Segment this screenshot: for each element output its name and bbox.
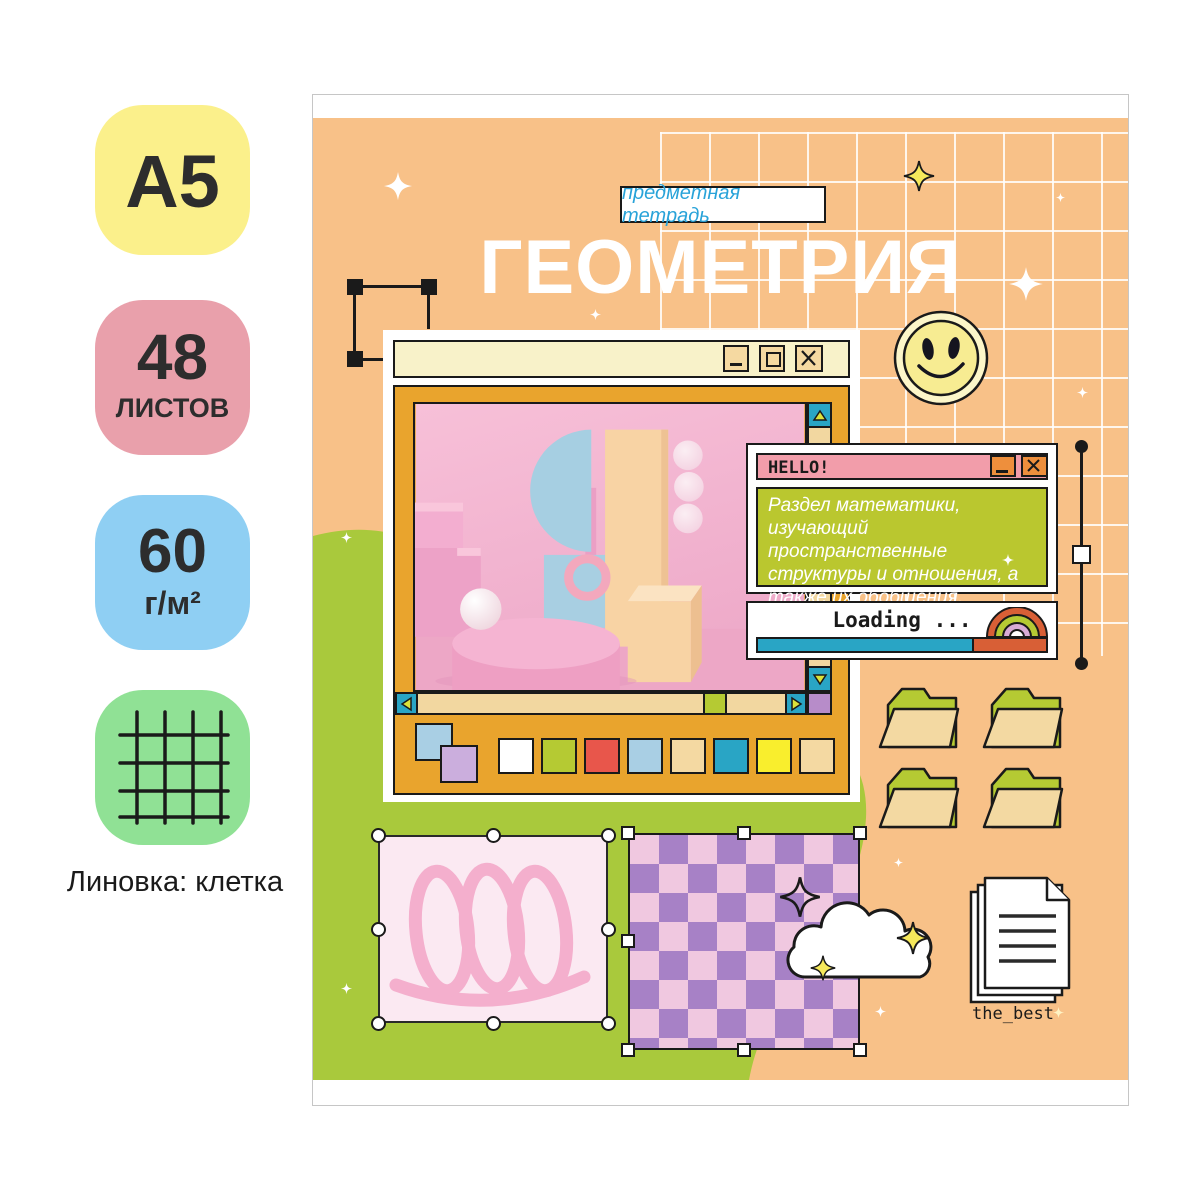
resize-handle[interactable] bbox=[486, 1016, 501, 1031]
cover-title: ГЕОМЕТРИЯ bbox=[313, 224, 1128, 311]
sparkle-icon bbox=[1055, 192, 1066, 203]
bracket-handle bbox=[347, 351, 363, 367]
folder-icon[interactable] bbox=[878, 765, 966, 831]
path-midpoint-handle[interactable] bbox=[1072, 545, 1091, 564]
scroll-left-button[interactable] bbox=[395, 692, 418, 715]
resize-handle[interactable] bbox=[621, 1043, 635, 1057]
resize-handle[interactable] bbox=[371, 1016, 386, 1031]
color-swatch[interactable] bbox=[799, 738, 835, 774]
notebook-cover: предметная тетрадь ГЕОМЕТРИЯ bbox=[313, 95, 1128, 1105]
sparkle-icon bbox=[1008, 266, 1044, 302]
folder-icon[interactable] bbox=[982, 685, 1070, 751]
hello-minimize-button[interactable] bbox=[990, 455, 1016, 477]
primary-color-chip[interactable] bbox=[440, 745, 478, 783]
ruling-badge bbox=[95, 690, 250, 845]
cover-print-area: предметная тетрадь ГЕОМЕТРИЯ bbox=[313, 118, 1128, 1080]
scrollbar-thumb[interactable] bbox=[703, 692, 727, 715]
close-button[interactable] bbox=[795, 345, 823, 372]
sparkle-icon bbox=[383, 171, 413, 201]
resize-handle[interactable] bbox=[486, 828, 501, 843]
sparkle-icon bbox=[893, 857, 904, 868]
color-swatch[interactable] bbox=[584, 738, 620, 774]
scrollbar-corner bbox=[807, 692, 832, 715]
color-swatch[interactable] bbox=[670, 738, 706, 774]
ruling-label: Линовка: клетка bbox=[45, 866, 305, 899]
folder-icon[interactable] bbox=[982, 765, 1070, 831]
density-unit: г/м² bbox=[95, 585, 250, 622]
hello-dialog: HELLO! Раздел математики, изучающий прос… bbox=[746, 443, 1058, 594]
grid-icon bbox=[95, 690, 250, 845]
color-swatch[interactable] bbox=[713, 738, 749, 774]
scroll-down-button[interactable] bbox=[807, 666, 832, 692]
hello-dialog-text: Раздел математики, изучающий пространств… bbox=[768, 494, 1040, 609]
format-badge: A5 bbox=[95, 105, 250, 255]
files-label: the_best bbox=[933, 1004, 1093, 1024]
horizontal-scrollbar-track[interactable] bbox=[395, 692, 832, 715]
resize-handle[interactable] bbox=[601, 828, 616, 843]
resize-handle[interactable] bbox=[371, 922, 386, 937]
sparkle-icon bbox=[1001, 553, 1015, 567]
resize-handle[interactable] bbox=[621, 934, 635, 948]
sparkle-icon bbox=[1076, 386, 1089, 399]
color-swatch[interactable] bbox=[541, 738, 577, 774]
resize-handle[interactable] bbox=[601, 1016, 616, 1031]
sparkle-icon bbox=[874, 1005, 887, 1018]
resize-handle[interactable] bbox=[853, 1043, 867, 1057]
loading-progressbar bbox=[756, 637, 1048, 653]
doodle-canvas[interactable] bbox=[378, 835, 608, 1023]
minimize-button[interactable] bbox=[723, 345, 749, 372]
smiley-icon bbox=[891, 308, 991, 408]
scroll-right-button[interactable] bbox=[785, 692, 807, 715]
resize-handle[interactable] bbox=[371, 828, 386, 843]
color-swatch[interactable] bbox=[498, 738, 534, 774]
resize-handle[interactable] bbox=[601, 922, 616, 937]
color-swatch[interactable] bbox=[756, 738, 792, 774]
hello-close-button[interactable] bbox=[1021, 455, 1048, 477]
sparkle-icon bbox=[340, 531, 353, 544]
loading-progress-fill bbox=[758, 639, 974, 651]
sheets-badge: 48 ЛИСТОВ bbox=[95, 300, 250, 455]
subject-tag: предметная тетрадь bbox=[620, 186, 826, 223]
sparkle-icon bbox=[903, 160, 935, 192]
scroll-up-button[interactable] bbox=[807, 402, 832, 428]
path-endpoint bbox=[1075, 657, 1088, 670]
format-badge-label: A5 bbox=[95, 105, 250, 219]
hello-dialog-body: Раздел математики, изучающий пространств… bbox=[756, 487, 1048, 587]
sparkle-icon bbox=[896, 921, 930, 955]
sparkle-icon bbox=[589, 308, 602, 321]
path-endpoint bbox=[1075, 440, 1088, 453]
sheets-unit: ЛИСТОВ bbox=[95, 393, 250, 424]
sparkle-icon bbox=[340, 982, 353, 995]
loading-window: Loading ... bbox=[746, 601, 1058, 660]
sheets-count: 48 bbox=[95, 300, 250, 389]
documents-icon[interactable] bbox=[963, 876, 1073, 1006]
resize-handle[interactable] bbox=[737, 826, 751, 840]
sparkle-icon bbox=[810, 955, 836, 981]
sparkle-icon bbox=[1052, 1006, 1065, 1019]
sparkle-icon bbox=[779, 876, 821, 918]
color-swatch[interactable] bbox=[627, 738, 663, 774]
resize-handle[interactable] bbox=[737, 1043, 751, 1057]
maximize-button[interactable] bbox=[759, 345, 785, 372]
hello-dialog-title: HELLO! bbox=[768, 458, 829, 478]
subject-tag-label: предметная тетрадь bbox=[622, 182, 824, 228]
resize-handle[interactable] bbox=[621, 826, 635, 840]
loop-doodle bbox=[380, 837, 606, 1021]
rainbow-icon bbox=[986, 607, 1048, 638]
density-value: 60 bbox=[95, 495, 250, 583]
resize-handle[interactable] bbox=[853, 826, 867, 840]
folder-icon[interactable] bbox=[878, 685, 966, 751]
density-badge: 60 г/м² bbox=[95, 495, 250, 650]
